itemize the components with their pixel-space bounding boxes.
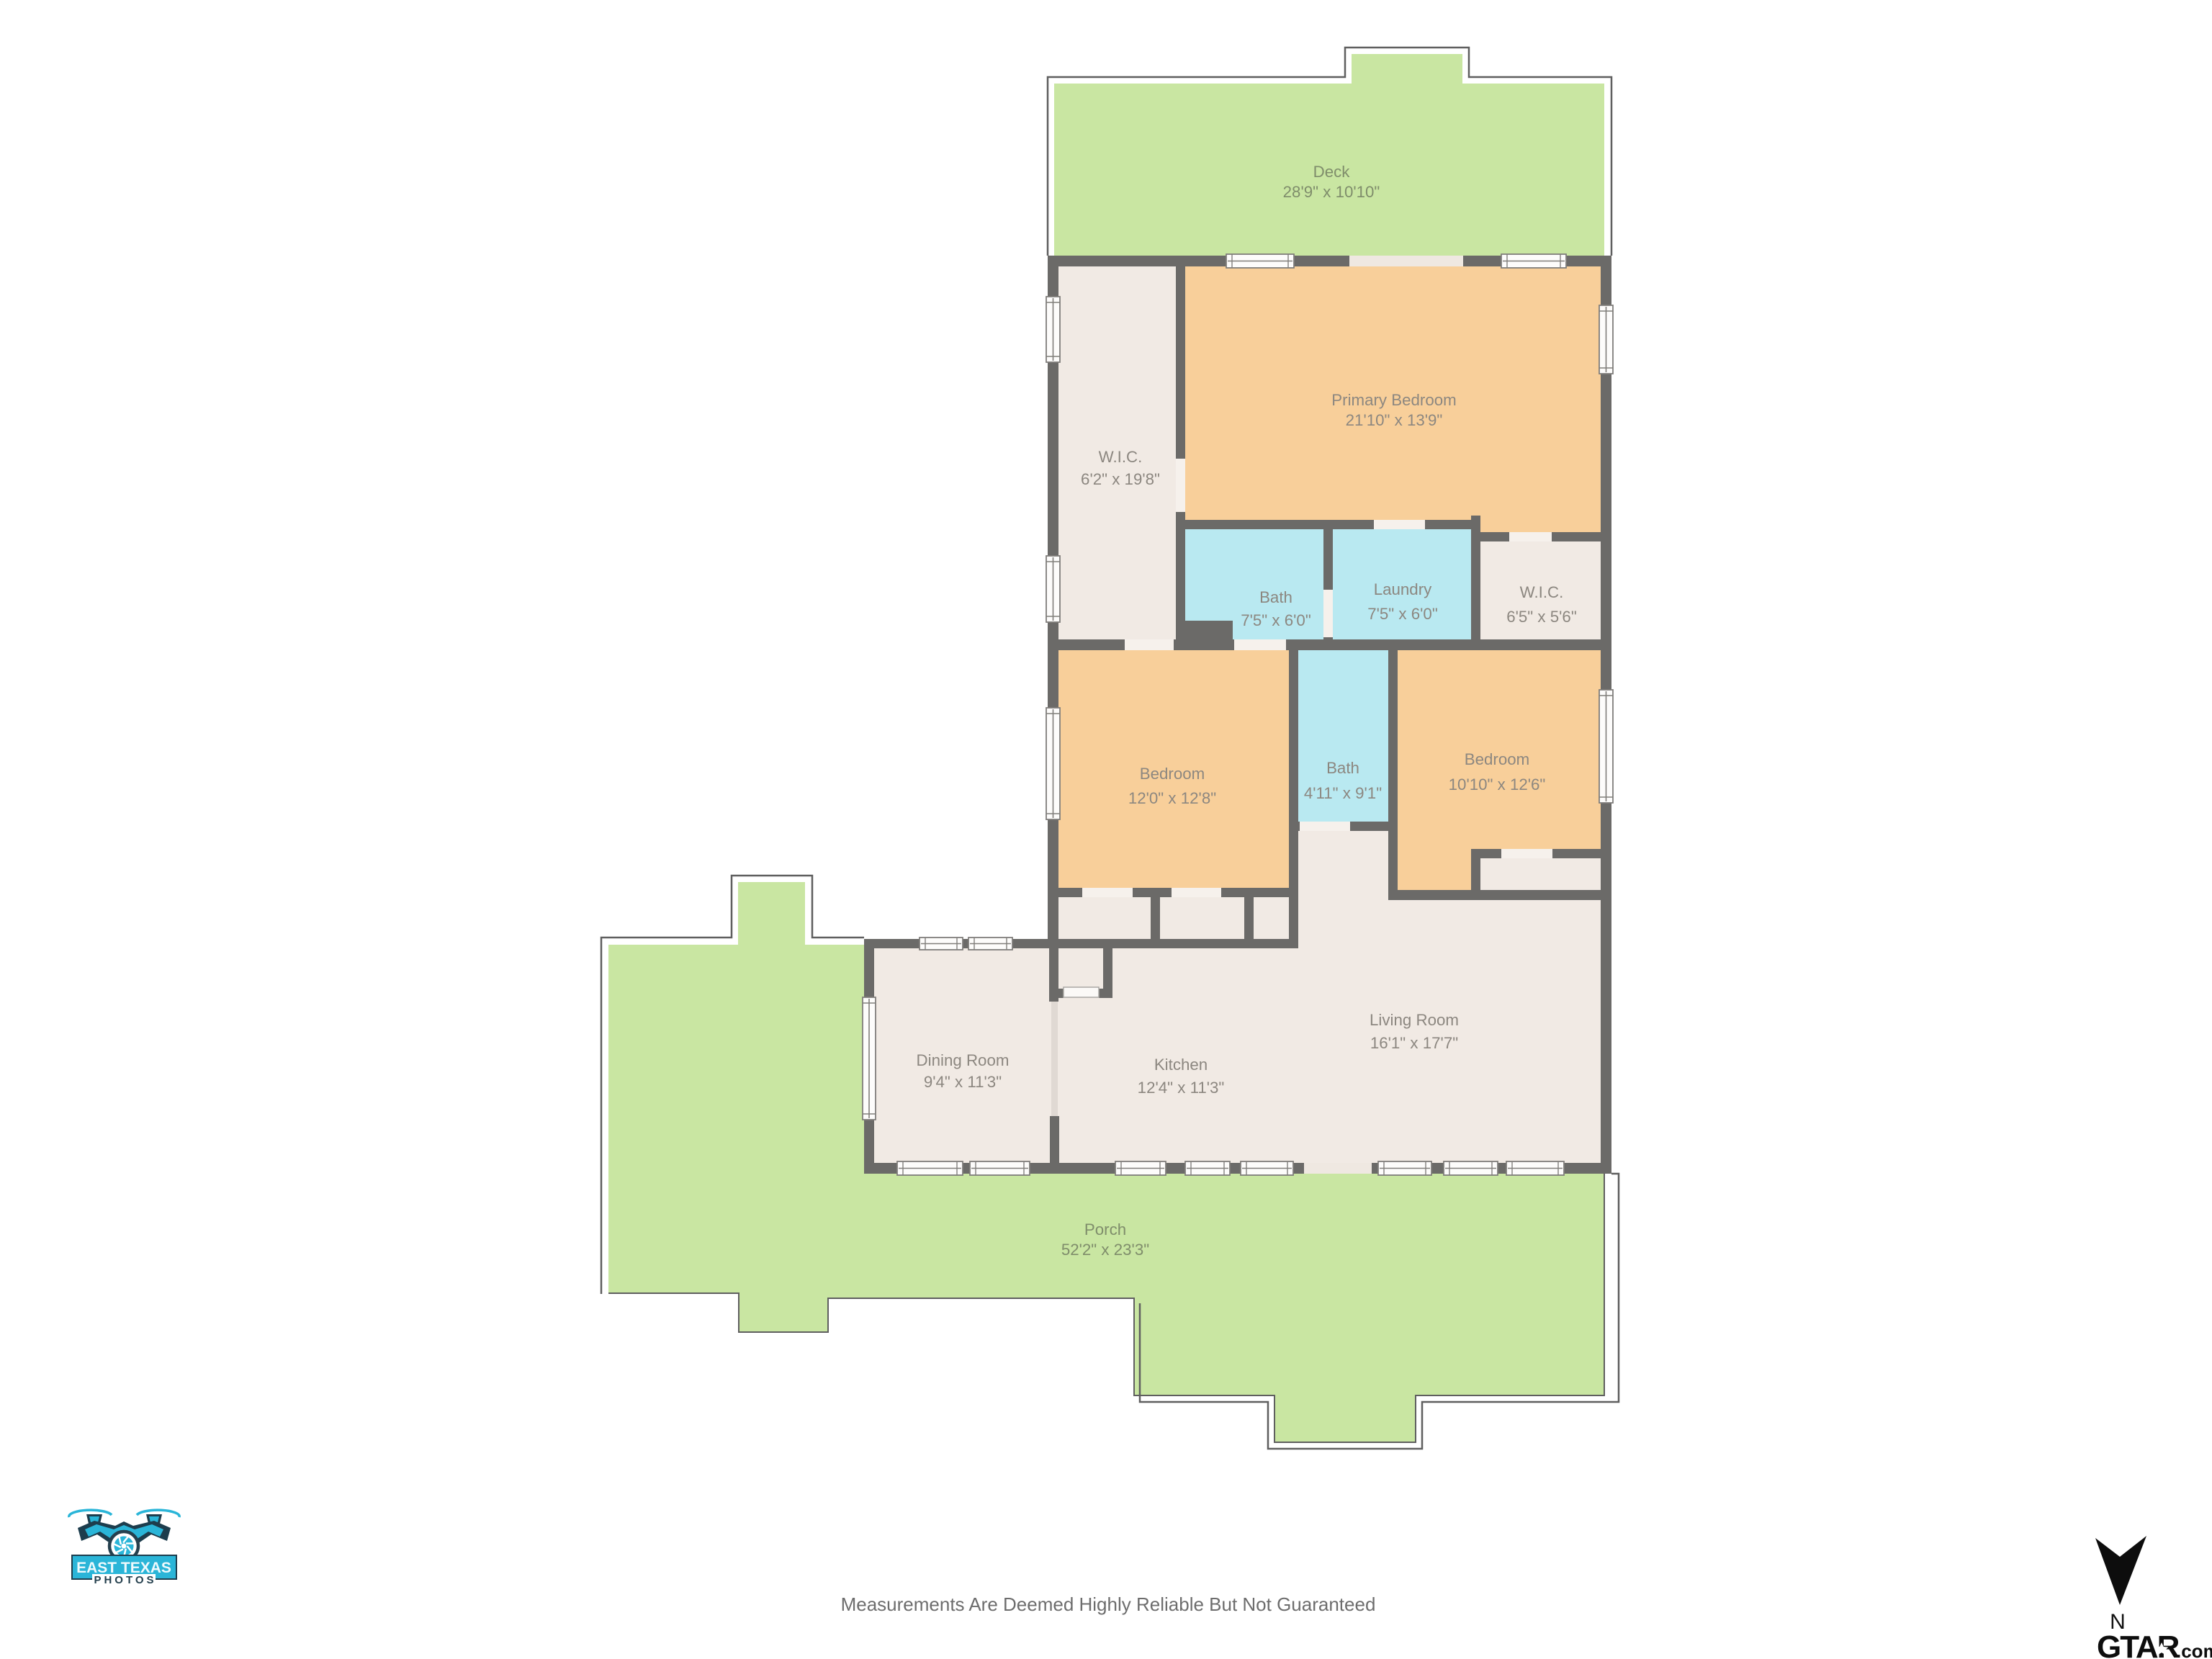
svg-text:GTAR: GTAR <box>2097 1629 2180 1659</box>
svg-text:21'10" x 13'9": 21'10" x 13'9" <box>1346 411 1443 429</box>
svg-text:Porch: Porch <box>1084 1220 1126 1238</box>
svg-text:Kitchen: Kitchen <box>1154 1056 1208 1074</box>
svg-text:52'2" x 23'3": 52'2" x 23'3" <box>1061 1241 1149 1259</box>
svg-text:Bath: Bath <box>1326 759 1359 777</box>
svg-text:PHOTOS: PHOTOS <box>94 1574 156 1586</box>
svg-text:.com: .com <box>2176 1640 2212 1659</box>
svg-text:Bedroom: Bedroom <box>1140 765 1205 783</box>
svg-text:Bedroom: Bedroom <box>1465 750 1529 768</box>
svg-text:12'4" x 11'3": 12'4" x 11'3" <box>1138 1079 1225 1097</box>
svg-text:4'11" x 9'1": 4'11" x 9'1" <box>1304 784 1382 802</box>
svg-text:28'9" x 10'10": 28'9" x 10'10" <box>1283 183 1380 201</box>
svg-text:Measurements Are Deemed Highly: Measurements Are Deemed Highly Reliable … <box>841 1593 1376 1615</box>
svg-text:12'0" x 12'8": 12'0" x 12'8" <box>1128 789 1216 807</box>
svg-text:Primary Bedroom: Primary Bedroom <box>1331 391 1456 409</box>
svg-text:6'5" x 5'6": 6'5" x 5'6" <box>1506 608 1576 626</box>
svg-text:W.I.C.: W.I.C. <box>1520 583 1564 601</box>
svg-text:9'4" x 11'3": 9'4" x 11'3" <box>924 1073 1002 1091</box>
svg-text:Living Room: Living Room <box>1370 1011 1459 1029</box>
svg-text:Laundry: Laundry <box>1374 580 1432 598</box>
svg-text:6'2" x 19'8": 6'2" x 19'8" <box>1081 470 1160 488</box>
svg-text:10'10" x 12'6": 10'10" x 12'6" <box>1449 775 1546 793</box>
svg-text:Dining Room: Dining Room <box>917 1051 1010 1069</box>
svg-text:7'5" x 6'0": 7'5" x 6'0" <box>1241 611 1310 629</box>
svg-text:Bath: Bath <box>1259 588 1292 606</box>
svg-text:W.I.C.: W.I.C. <box>1099 448 1143 466</box>
svg-text:7'5" x 6'0": 7'5" x 6'0" <box>1367 605 1437 623</box>
svg-text:16'1" x 17'7": 16'1" x 17'7" <box>1370 1034 1458 1052</box>
svg-text:Deck: Deck <box>1313 163 1351 181</box>
